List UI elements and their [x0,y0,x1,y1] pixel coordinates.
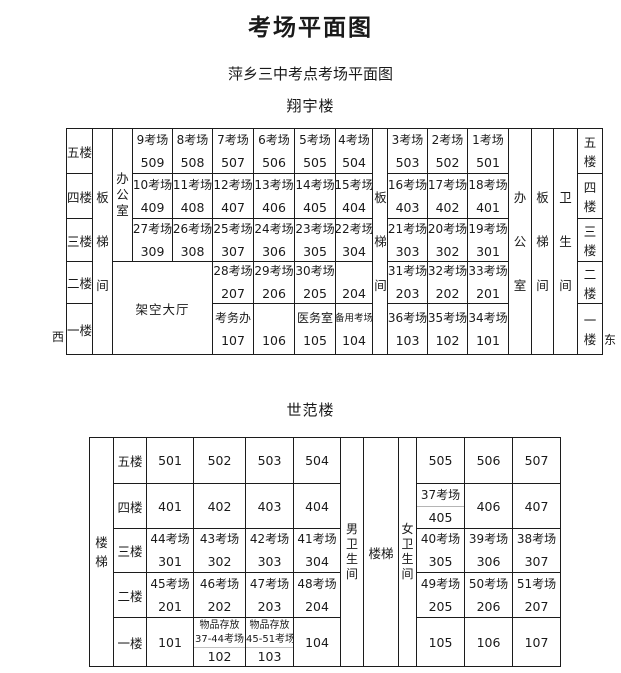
compass-west-label: 西 [52,328,64,345]
room-number-cell: 106 [465,618,513,667]
storage-cell: 物品存放45-51考场103 [246,618,294,667]
storage-cell: 物品存放37-44考场102 [194,618,246,667]
male-toilet-label: 男卫生间 [341,438,364,667]
room-cell: 15考场404 [336,174,373,219]
room-cell: 4考场504 [336,129,373,174]
office-left-label: 办公室 [113,129,133,262]
floor-label-right: 五楼 [578,129,603,174]
floor-label-left: 三楼 [67,219,93,262]
room-cell: 28考场207 [213,262,254,304]
room-number-cell: 105 [417,618,465,667]
room-number-cell: 503 [246,438,294,484]
room-cell: 考务办107 [213,304,254,355]
room-cell: 21考场303 [388,219,428,262]
room-cell: 39考场306 [465,529,513,573]
room-cell: 11考场408 [173,174,213,219]
stairwell-mid-label: 板梯间 [373,129,388,355]
room-cell: 38考场307 [513,529,561,573]
room-cell: 47考场203 [246,573,294,618]
room-cell: 医务室105 [295,304,336,355]
floor-label: 四楼 [114,484,147,529]
room-cell: 36考场103 [388,304,428,355]
room-cell: 14考场405 [295,174,336,219]
room-number-cell: 406 [465,484,513,529]
xiangyu-building-heading: 翔宇楼 [0,95,621,116]
room-cell: 37考场405 [417,484,465,529]
floor-label-left: 四楼 [67,174,93,219]
room-cell: 51考场207 [513,573,561,618]
room-cell: 26考场308 [173,219,213,262]
room-cell: 5考场505 [295,129,336,174]
page-title: 考场平面图 [0,8,621,42]
floor-label-right: 一楼 [578,304,603,355]
office-right-label: 办公室 [509,129,532,355]
room-cell: 48考场204 [294,573,341,618]
room-cell: 33考场201 [468,262,509,304]
room-cell: 19考场301 [468,219,509,262]
room-number-cell: 504 [294,438,341,484]
room-cell: 10考场409 [133,174,173,219]
room-number-cell: 507 [513,438,561,484]
room-cell: 13考场406 [254,174,295,219]
room-cell: 18考场401 [468,174,509,219]
room-cell: 42考场303 [246,529,294,573]
floor-label-left: 五楼 [67,129,93,174]
room-cell: 1考场501 [468,129,509,174]
room-cell: 35考场102 [428,304,468,355]
room-cell: 22考场304 [336,219,373,262]
room-cell: 41考场304 [294,529,341,573]
floor-label: 三楼 [114,529,147,573]
stairwell-right-label: 板梯间 [532,129,554,355]
room-cell: 2考场502 [428,129,468,174]
stairwell-left-label: 楼梯 [90,438,114,667]
room-cell: 30考场205 [295,262,336,304]
open-hall-cell: 架空大厅 [113,262,213,355]
room-cell: 备用考场104 [336,304,373,355]
room-cell: 29考场206 [254,262,295,304]
female-toilet-label: 女卫生间 [399,438,417,667]
room-cell: 7考场507 [213,129,254,174]
room-cell: 24考场306 [254,219,295,262]
room-cell: 20考场302 [428,219,468,262]
floor-label: 五楼 [114,438,147,484]
room-number-cell: 506 [465,438,513,484]
room-cell: 8考场508 [173,129,213,174]
floor-label-right: 四楼 [578,174,603,219]
floor-label-left: 一楼 [67,304,93,355]
room-cell: 12考场407 [213,174,254,219]
shifan-table: 楼梯 五楼 501 502 503 504 男卫生间 楼梯 女卫生间 505 5… [89,437,561,667]
floor-label: 一楼 [114,618,147,667]
room-number-cell: 404 [294,484,341,529]
compass-east-label: 东 [604,331,616,348]
room-cell: 25考场307 [213,219,254,262]
stairwell-left-label: 板梯间 [93,129,113,355]
room-number-cell: 101 [147,618,194,667]
room-number-cell: 501 [147,438,194,484]
floor-label-left: 二楼 [67,262,93,304]
room-cell: 43考场302 [194,529,246,573]
room-cell: 23考场305 [295,219,336,262]
room-cell: 31考场203 [388,262,428,304]
room-cell: 50考场206 [465,573,513,618]
room-cell: 16考场403 [388,174,428,219]
room-number-cell: 107 [513,618,561,667]
room-number-cell: 502 [194,438,246,484]
room-number-cell: 104 [294,618,341,667]
floor-plan-page: 考场平面图 萍乡三中考点考场平面图 翔宇楼 五楼 板梯间 办公室 9考场509 … [0,0,621,673]
room-number-cell: 402 [194,484,246,529]
room-cell: 44考场301 [147,529,194,573]
floor-label-right: 二楼 [578,262,603,304]
room-cell: 46考场202 [194,573,246,618]
room-number-cell: 505 [417,438,465,484]
room-cell: 17考场402 [428,174,468,219]
room-cell: 6考场506 [254,129,295,174]
shifan-building-heading: 世范楼 [0,399,621,420]
room-cell: 9考场509 [133,129,173,174]
floor-label: 二楼 [114,573,147,618]
room-cell: 45考场201 [147,573,194,618]
xiangyu-table: 五楼 板梯间 办公室 9考场509 8考场508 7考场507 6考场506 5… [66,128,603,355]
toilet-right-label: 卫生间 [554,129,578,355]
room-cell: 27考场309 [133,219,173,262]
room-cell: 49考场205 [417,573,465,618]
room-number-cell: 403 [246,484,294,529]
room-number-cell: 407 [513,484,561,529]
page-subtitle: 萍乡三中考点考场平面图 [0,63,621,84]
room-cell: 32考场202 [428,262,468,304]
room-cell: 106 [254,304,295,355]
room-cell: 34考场101 [468,304,509,355]
room-cell: 204 [336,262,373,304]
room-cell: 3考场503 [388,129,428,174]
room-cell: 40考场305 [417,529,465,573]
stairwell-mid-label: 楼梯 [364,438,399,667]
room-number-cell: 401 [147,484,194,529]
floor-label-right: 三楼 [578,219,603,262]
